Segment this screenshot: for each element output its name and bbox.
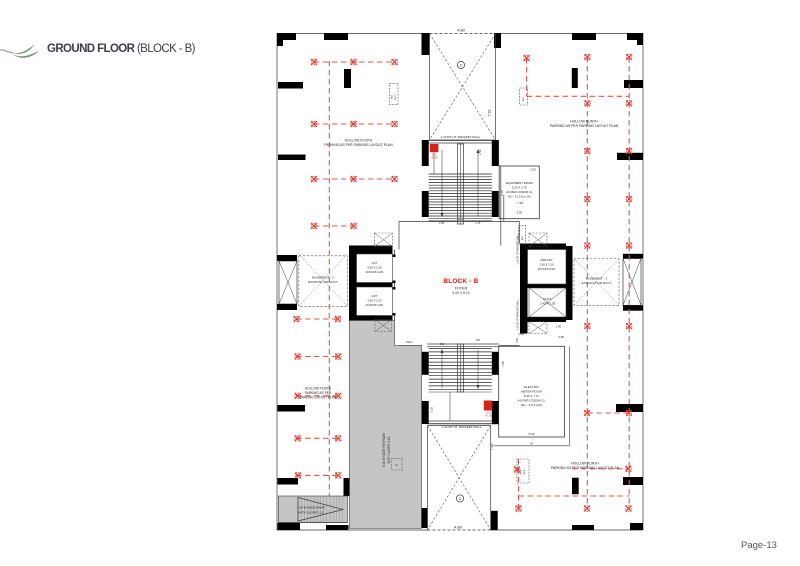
svg-text:BLOCK - B: BLOCK - B xyxy=(443,278,478,285)
svg-text:3.10: 3.10 xyxy=(430,407,434,413)
svg-text:1.10 MT HT PARAPET WALL: 1.10 MT HT PARAPET WALL xyxy=(517,299,520,331)
svg-text:1.10 MT HT. PARAPET WALL: 1.10 MT HT. PARAPET WALL xyxy=(441,135,481,139)
svg-text:HOLLOW PLINTH: HOLLOW PLINTH xyxy=(570,120,598,124)
svg-text:BASEMENT - 2: BASEMENT - 2 xyxy=(312,276,334,280)
svg-text:ELE: ELE xyxy=(392,94,394,99)
svg-text:2.65 X 2.20: 2.65 X 2.20 xyxy=(367,299,382,303)
svg-text:ELECTRIC: ELECTRIC xyxy=(524,385,540,389)
svg-text:BASEMENT - 2: BASEMENT - 2 xyxy=(586,277,608,281)
svg-text:5.26 X 7.17: 5.26 X 7.17 xyxy=(524,394,540,398)
svg-text:3.02: 3.02 xyxy=(516,211,522,215)
svg-text:20 PASS CAP.: 20 PASS CAP. xyxy=(365,303,383,307)
svg-text:LIFT: LIFT xyxy=(372,261,378,265)
svg-text:1.90: 1.90 xyxy=(556,325,562,329)
svg-text:4.80: 4.80 xyxy=(457,28,466,33)
svg-text:1.05 M WIDE RAMP: 1.05 M WIDE RAMP xyxy=(297,506,325,510)
svg-text:PARKING AS PER PARKING LAYOUT: PARKING AS PER PARKING LAYOUT PLAN xyxy=(324,143,393,147)
svg-text:7.92: 7.92 xyxy=(488,110,492,117)
svg-text:PARKING AS PER PARKING LAYOUT: PARKING AS PER PARKING LAYOUT PLAN xyxy=(551,466,620,470)
svg-text:HOLLOW PLINTH: HOLLOW PLINTH xyxy=(571,462,599,466)
svg-text:ELE: ELE xyxy=(523,96,525,101)
svg-text:HOLLOW PLINTH: HOLLOW PLINTH xyxy=(305,387,332,391)
svg-text:2.45 X 2.30: 2.45 X 2.30 xyxy=(540,302,556,306)
svg-text:EXHAUST AIR DUCT: EXHAUST AIR DUCT xyxy=(308,280,338,284)
svg-text:FIRE LIFT: FIRE LIFT xyxy=(540,258,553,262)
svg-text:DN: DN xyxy=(440,342,444,346)
svg-text:2.03: 2.03 xyxy=(530,168,536,172)
svg-text:FALL: FALL xyxy=(406,340,413,344)
svg-text:PARKING AS PER PARKING LAYOUT: PARKING AS PER PARKING LAYOUT PLAN xyxy=(550,124,619,128)
svg-text:20 PASS CAP.: 20 PASS CAP. xyxy=(365,270,383,274)
svg-text:LIFT: LIFT xyxy=(372,294,378,298)
svg-text:3.40 M WIDE PATHWAY: 3.40 M WIDE PATHWAY xyxy=(382,432,386,468)
svg-text:2.65 X 2.20: 2.65 X 2.20 xyxy=(367,266,382,270)
svg-text:+0.15: +0.15 xyxy=(485,414,492,418)
svg-text:AS PER CODOR CL: AS PER CODOR CL xyxy=(518,399,546,403)
svg-text:1.10 MT HT. PARAPET WALL: 1.10 MT HT. PARAPET WALL xyxy=(442,425,482,429)
svg-text:EXHAUST AIR DUCT: EXHAUST AIR DUCT xyxy=(582,281,612,285)
svg-text:3.38: 3.38 xyxy=(558,335,564,339)
svg-text:7.58: 7.58 xyxy=(501,361,505,367)
svg-text:DUCT: DUCT xyxy=(543,297,551,301)
svg-text:NO - 11.2.5 m (A): NO - 11.2.5 m (A) xyxy=(508,195,531,199)
svg-text:D: D xyxy=(460,64,463,68)
svg-text:ELE: ELE xyxy=(522,235,524,240)
svg-text:AGE: AGE xyxy=(523,469,526,474)
svg-text:7.92: 7.92 xyxy=(490,444,494,451)
svg-text:20: 20 xyxy=(530,441,533,445)
svg-text:D: D xyxy=(459,497,462,501)
svg-text:SIGN: SIGN xyxy=(521,469,523,475)
svg-text:5.02: 5.02 xyxy=(529,432,535,436)
svg-text:- 7.63: - 7.63 xyxy=(515,201,523,205)
svg-text:PARKING AS PER: PARKING AS PER xyxy=(305,391,332,395)
svg-text:1.10 MT HT PARAPET WALL: 1.10 MT HT PARAPET WALL xyxy=(517,233,520,265)
svg-text:NO. - 5.3.2 A(C): NO. - 5.3.2 A(C) xyxy=(521,403,543,407)
svg-text:+0.15: +0.15 xyxy=(431,156,438,160)
svg-text:20 PASS CAP.: 20 PASS CAP. xyxy=(538,267,556,271)
svg-text:2.10: 2.10 xyxy=(478,149,482,155)
svg-text:2.65 X 2.20: 2.65 X 2.20 xyxy=(540,263,554,267)
svg-text:METER ROOM: METER ROOM xyxy=(521,390,542,394)
svg-text:WITH SLOPE 1:12: WITH SLOPE 1:12 xyxy=(298,511,324,515)
svg-text:DUCT: DUCT xyxy=(395,93,397,100)
svg-text:PARKING LAYOUT PLAN: PARKING LAYOUT PLAN xyxy=(300,396,337,400)
svg-text:AS PER CODOR CL: AS PER CODOR CL xyxy=(506,190,533,194)
svg-text:EQUIPMENT ROOM: EQUIPMENT ROOM xyxy=(506,181,534,185)
svg-text:HOLLOW PLINTH: HOLLOW PLINTH xyxy=(345,139,373,143)
svg-text:UP: UP xyxy=(476,338,480,342)
svg-text:WITH SLOPE 1:12: WITH SLOPE 1:12 xyxy=(387,436,391,463)
svg-text:9.00 X 8.10: 9.00 X 8.10 xyxy=(452,291,469,295)
svg-text:3.20 X 3.75: 3.20 X 3.75 xyxy=(512,186,527,190)
svg-text:4.80: 4.80 xyxy=(454,525,463,530)
svg-text:7.58: 7.58 xyxy=(515,338,519,344)
svg-text:2.03: 2.03 xyxy=(520,331,526,335)
